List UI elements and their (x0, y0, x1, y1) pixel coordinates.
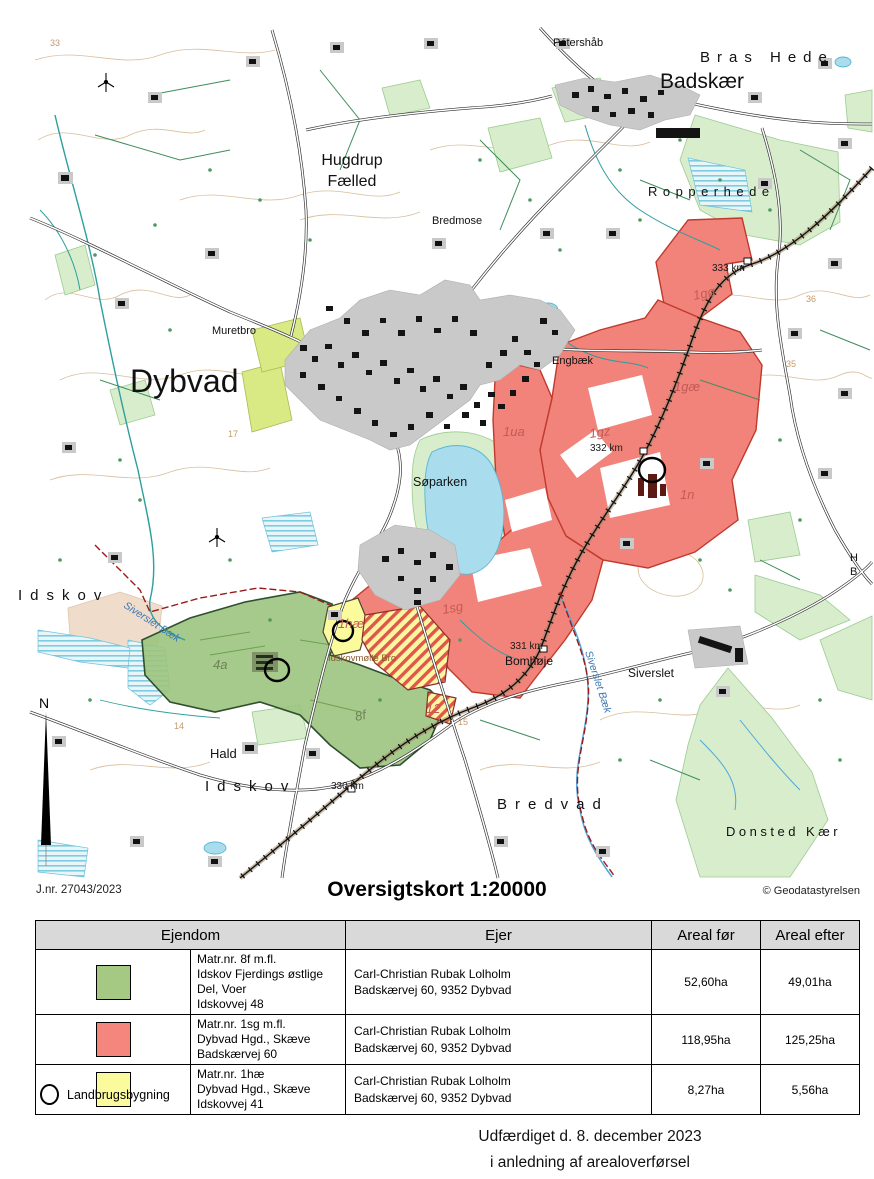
map-place-label: H (850, 552, 858, 564)
ejerlav: Dybvad Hgd., Skæve (197, 1032, 339, 1047)
matr-nr: Matr.nr. 1sg m.fl. (197, 1017, 339, 1032)
map-place-label: Dybvad (130, 363, 239, 399)
overview-map: N Pétershåb Bras Hede Badskær Ropperhede… (0, 0, 874, 880)
map-contour-label: 36 (806, 294, 816, 304)
map-place-label: Bras Hede (700, 49, 834, 66)
ejerlav: Dybvad Hgd., Skæve (197, 1082, 339, 1097)
map-parcel-label: 1gæ (674, 379, 700, 394)
map-place-label: Bredmose (432, 215, 482, 227)
owner-name: Carl-Christian Rubak Lolholm (354, 1073, 643, 1089)
column-header-ejendom: Ejendom (36, 921, 346, 950)
property-description: Matr.nr. 8f m.fl. Idskov Fjerdings østli… (191, 950, 346, 1015)
map-parcel-label: 1ua (503, 424, 525, 439)
parcel-color-swatch (96, 965, 131, 1000)
area-after: 125,25ha (761, 1015, 860, 1065)
owner-address: Badskærvej 60, 9352 Dybvad (354, 982, 643, 998)
map-km-label: 330 km (331, 781, 364, 792)
map-km-label: 331 km (510, 641, 543, 652)
owner-name: Carl-Christian Rubak Lolholm (354, 966, 643, 982)
area-before: 118,95ha (652, 1015, 761, 1065)
cadastral-overview-page: { "page": { "jnr": "J.nr. 27043/2023", "… (0, 0, 874, 1179)
address: Badskærvej 60 (197, 1047, 339, 1062)
area-after: 49,01ha (761, 950, 860, 1015)
owner-name: Carl-Christian Rubak Lolholm (354, 1023, 643, 1039)
map-place-label: Idskovmølle Bro (328, 653, 396, 664)
footer-note: Udfærdiget d. 8. december 2023 i anledni… (310, 1124, 870, 1177)
map-place-label: Muretbro (212, 325, 256, 337)
map-contour-label: 17 (228, 429, 238, 439)
map-place-label: Ropperhede (648, 184, 775, 199)
map-contour-label: 15 (458, 717, 468, 727)
map-place-label: Bomhøje (505, 654, 553, 668)
map-km-label: 333 km (712, 263, 745, 274)
table-row: Matr.nr. 1sg m.fl. Dybvad Hgd., Skæve Ba… (36, 1015, 860, 1065)
column-header-areal-foer: Areal før (652, 921, 761, 950)
map-km-label: 332 km (590, 443, 623, 454)
map-place-label: Engbæk (552, 355, 593, 367)
map-place-label: Søparken (413, 475, 467, 489)
legend-label: Landbrugsbygning (67, 1088, 170, 1102)
map-place-label: Hugdrup (321, 152, 382, 169)
column-header-areal-efter: Areal efter (761, 921, 860, 950)
map-parcel-label: 12 (426, 701, 441, 716)
area-before: 8,27ha (652, 1065, 761, 1115)
owner-address: Badskærvej 60, 9352 Dybvad (354, 1040, 643, 1056)
map-place-label: Siverslet (628, 666, 675, 680)
property-description: Matr.nr. 1hæ Dybvad Hgd., Skæve Idskovve… (191, 1065, 346, 1115)
north-label: N (39, 695, 49, 711)
map-legend: Landbrugsbygning (40, 1084, 170, 1105)
page-title: Oversigtskort 1:20000 (0, 878, 874, 902)
map-canvas: N Pétershåb Bras Hede Badskær Ropperhede… (0, 0, 874, 880)
map-parcel-label: 1gz (588, 423, 611, 441)
footer-line-1: Udfærdiget d. 8. december 2023 (310, 1124, 870, 1150)
map-place-label: Fælled (328, 173, 377, 190)
map-parcel-label: 1n (680, 487, 694, 502)
map-parcel-label: 4a (213, 657, 227, 672)
owner-cell: Carl-Christian Rubak Lolholm Badskærvej … (346, 1065, 652, 1115)
map-contour-label: 35 (786, 359, 796, 369)
copyright-notice: © Geodatastyrelsen (763, 885, 860, 897)
matr-nr: Matr.nr. 8f m.fl. (197, 952, 339, 967)
map-parcel-label: 1hæ (338, 616, 364, 631)
matr-nr: Matr.nr. 1hæ (197, 1067, 339, 1082)
ejerlav: Idskov Fjerdings østlige Del, Voer (197, 967, 339, 997)
area-after: 5,56ha (761, 1065, 860, 1115)
map-contour-label: 33 (50, 38, 60, 48)
map-place-label: Bredvad (497, 796, 609, 813)
map-place-label: Donsted Kær (726, 824, 841, 839)
landbrugsbygning-icon (40, 1084, 59, 1105)
map-place-label: B (850, 566, 857, 578)
map-contour-label: 14 (174, 721, 184, 731)
map-place-label: Badskær (660, 70, 744, 93)
address: Idskovvej 48 (197, 997, 339, 1012)
map-place-label: Hald (210, 746, 237, 761)
property-description: Matr.nr. 1sg m.fl. Dybvad Hgd., Skæve Ba… (191, 1015, 346, 1065)
owner-cell: Carl-Christian Rubak Lolholm Badskærvej … (346, 1015, 652, 1065)
table-header-row: Ejendom Ejer Areal før Areal efter (36, 921, 860, 950)
parcel-color-swatch (96, 1022, 131, 1057)
owner-address: Badskærvej 60, 9352 Dybvad (354, 1090, 643, 1106)
area-before: 52,60ha (652, 950, 761, 1015)
table-row: Matr.nr. 8f m.fl. Idskov Fjerdings østli… (36, 950, 860, 1015)
owner-cell: Carl-Christian Rubak Lolholm Badskærvej … (346, 950, 652, 1015)
address: Idskovvej 41 (197, 1097, 339, 1112)
map-place-label: Idskov (18, 587, 109, 604)
column-header-ejer: Ejer (346, 921, 652, 950)
map-place-label: Pétershåb (553, 37, 603, 49)
map-place-label: Idskov (205, 778, 296, 795)
footer-line-2: i anledning af arealoverførsel (310, 1150, 870, 1176)
